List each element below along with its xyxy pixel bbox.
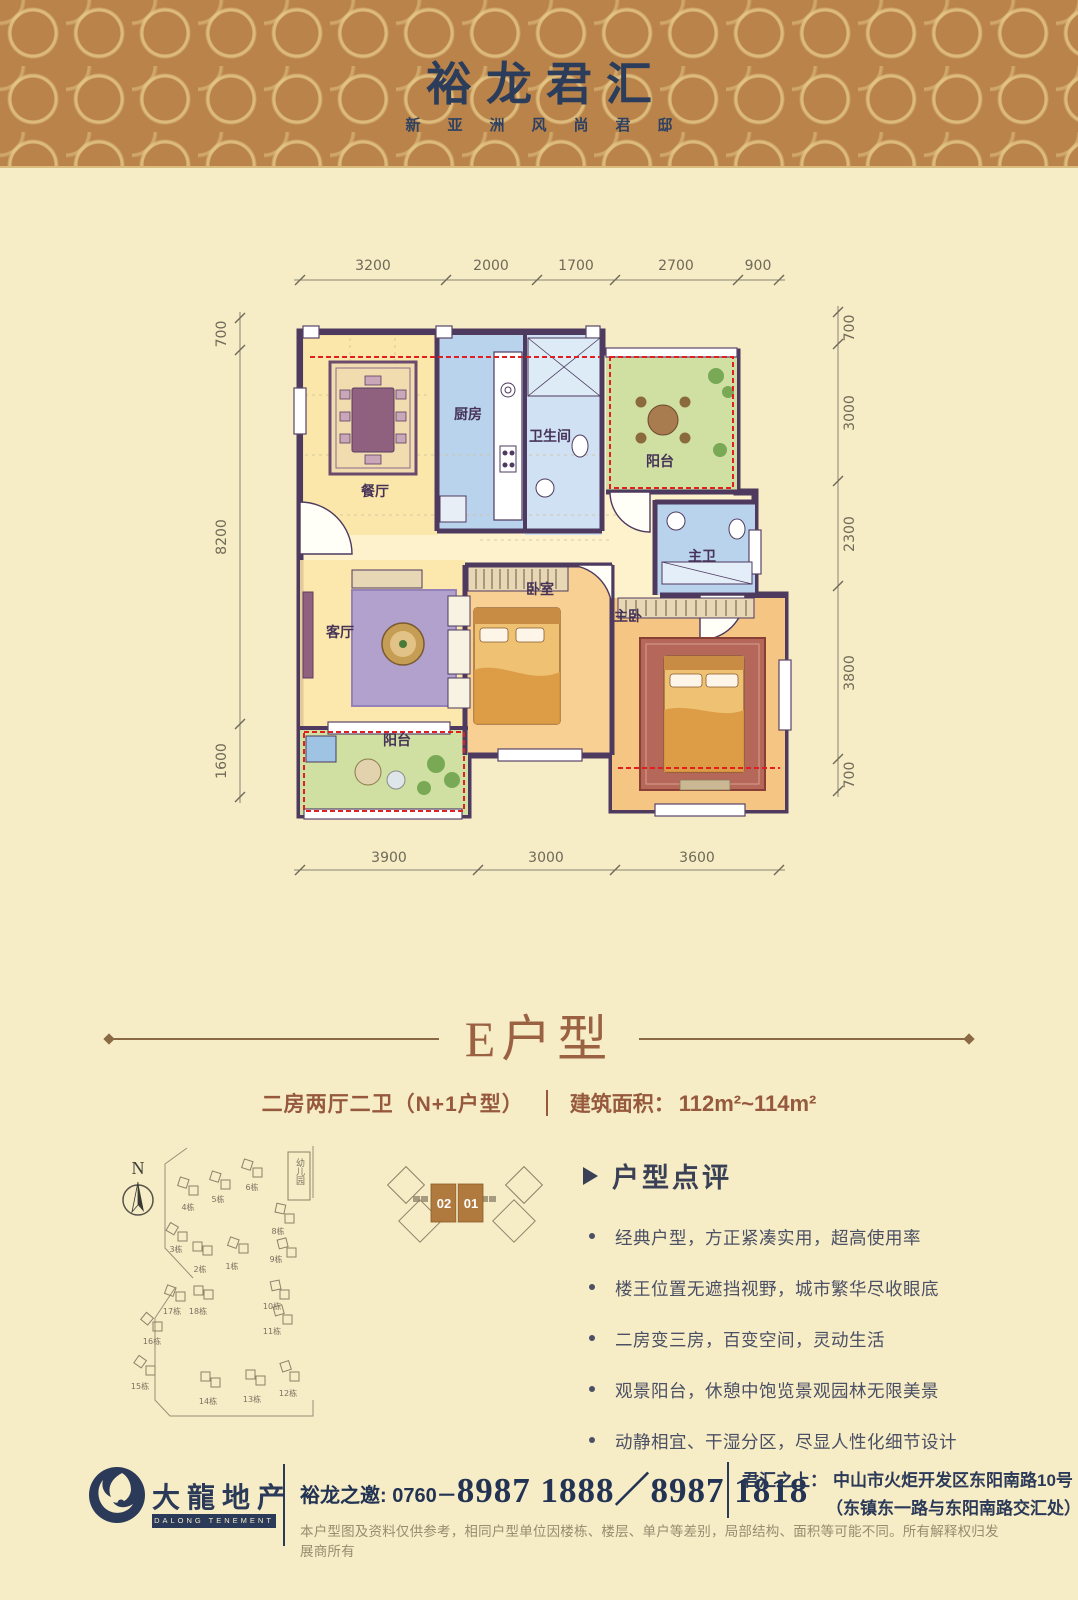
comment-text: 经典户型，方正紧凑实用，超高使用率	[615, 1225, 921, 1250]
building-label: 16栋	[143, 1336, 161, 1346]
disclaimer-text: 本户型图及资料仅供参考，相同户型单位因楼栋、楼层、单户等差别，局部结构、面积等可…	[300, 1520, 1012, 1560]
room-label-balcony-bottom: 阳台	[383, 732, 411, 748]
building-label: 1栋	[225, 1261, 238, 1271]
unit-block-02-label: 02	[437, 1196, 451, 1211]
room-label-bath: 卫生间	[529, 428, 571, 444]
key-plan: 02 01	[388, 1167, 543, 1243]
footer-divider	[283, 1464, 285, 1546]
building-label: 4栋	[181, 1202, 194, 1212]
comment-text: 二房变三房，百变空间，灵动生活	[615, 1327, 885, 1352]
unit-type-header: E户型	[0, 1014, 1078, 1064]
building-label: 6栋	[245, 1182, 258, 1192]
poster-page: 裕龙君汇 新亚洲风尚君邸	[0, 0, 1078, 1600]
dim-left-3: 1600	[214, 743, 230, 779]
building-label: 14栋	[199, 1396, 217, 1406]
building-label: 17栋	[163, 1306, 181, 1316]
room-label-bedroom: 卧室	[526, 581, 554, 597]
dimension-right: 700 3000 2300 3800 700	[833, 306, 858, 797]
bullet-icon	[589, 1386, 595, 1392]
list-item: 二房变三房，百变空间，灵动生活	[589, 1327, 1013, 1352]
dim-bottom-3: 3600	[679, 850, 715, 866]
dim-top-4: 2700	[658, 258, 694, 274]
bullet-icon	[589, 1233, 595, 1239]
list-item: 经典户型，方正紧凑实用，超高使用率	[589, 1225, 1013, 1250]
dim-right-2: 3000	[842, 395, 858, 431]
unit-area-value: 112m²~114m²	[679, 1091, 817, 1116]
room-label-balcony-top: 阳台	[646, 453, 674, 469]
unit-layout: 二房两厅二卫（N+1户型）	[262, 1088, 524, 1118]
room-label-dining: 餐厅	[360, 483, 389, 499]
list-item: 楼王位置无遮挡视野，城市繁华尽收眼底	[589, 1276, 1013, 1301]
floor-plan: 餐厅 厨房 卫生间 阳台 主卫 客厅 卧室 主卧 阳台 3200 2000 17…	[0, 240, 1078, 940]
dim-right-4: 3800	[842, 655, 858, 691]
dim-top-1: 3200	[355, 258, 391, 274]
comment-text: 楼王位置无遮挡视野，城市繁华尽收眼底	[615, 1276, 939, 1301]
comment-text: 观景阳台，休憩中饱览景观园林无限美景	[615, 1378, 939, 1403]
brand-tagline: 新亚洲风尚君邸	[0, 114, 1078, 135]
dim-right-1: 700	[842, 315, 858, 342]
building-label: 9栋	[269, 1254, 282, 1264]
phone-block: 裕龙之邀: 0760－ 8987 1888／8987 1818	[300, 1462, 808, 1513]
address-block: 君汇之上： 中山市火炬开发区东阳南路10号 （东镇东一路与东阳南路交汇处）	[742, 1466, 1078, 1519]
dim-bottom-1: 3900	[371, 850, 407, 866]
site-boundary	[155, 1146, 313, 1416]
room-label-kitchen: 厨房	[454, 406, 482, 422]
dim-bottom-2: 3000	[528, 850, 564, 866]
developer-name: 大龍地产	[152, 1476, 292, 1516]
dimension-left: 700 8200 1600	[214, 312, 245, 803]
building-label: 13栋	[243, 1394, 261, 1404]
diamond-icon	[964, 1033, 975, 1044]
compass-icon: N	[123, 1158, 153, 1215]
unit-area: 建筑面积：112m²~114m²	[570, 1088, 817, 1118]
building-label: 8栋	[271, 1226, 284, 1236]
dining-furniture	[330, 362, 416, 474]
comment-text: 动静相宜、干湿分区，尽显人性化细节设计	[615, 1429, 957, 1454]
footer-divider	[727, 1462, 729, 1518]
building-label: 10栋	[263, 1301, 281, 1311]
subtitle-divider	[546, 1090, 548, 1116]
dimension-bottom: 3900 3000 3600	[294, 850, 785, 875]
list-item: 动静相宜、干湿分区，尽显人性化细节设计	[589, 1429, 1013, 1454]
kindergarten: 幼儿园	[288, 1152, 310, 1200]
title-rule-left	[109, 1038, 439, 1040]
building-label: 15栋	[131, 1381, 149, 1391]
unit-subtitle: 二房两厅二卫（N+1户型） 建筑面积：112m²~114m²	[0, 1088, 1078, 1118]
dim-top-5: 900	[745, 258, 772, 274]
site-plan: N	[75, 1128, 575, 1428]
compass-north-label: N	[132, 1158, 145, 1178]
section-marker-icon	[583, 1167, 598, 1185]
address-line2: （东镇东一路与东阳南路交汇处）	[826, 1494, 1078, 1519]
bullet-icon	[589, 1437, 595, 1443]
building-label: 11栋	[263, 1326, 281, 1336]
building-label: 2栋	[193, 1264, 206, 1274]
room-label-living: 客厅	[325, 624, 354, 640]
list-item: 观景阳台，休憩中饱览景观园林无限美景	[589, 1378, 1013, 1403]
bullet-icon	[589, 1335, 595, 1341]
brand-title: 裕龙君汇	[0, 48, 1078, 114]
dim-top-3: 1700	[558, 258, 594, 274]
comments-header: 户型点评	[583, 1156, 1013, 1195]
comments-section: 户型点评 经典户型，方正紧凑实用，超高使用率 楼王位置无遮挡视野，城市繁华尽收眼…	[583, 1156, 1013, 1480]
dimension-top: 3200 2000 1700 2700 900	[294, 258, 785, 285]
header-banner: 裕龙君汇 新亚洲风尚君邸	[0, 0, 1078, 168]
dim-right-3: 2300	[842, 516, 858, 552]
comments-title: 户型点评	[612, 1156, 732, 1195]
developer-logo-icon	[88, 1466, 146, 1524]
unit-type-title: E户型	[465, 1014, 614, 1064]
comments-list: 经典户型，方正紧凑实用，超高使用率 楼王位置无遮挡视野，城市繁华尽收眼底 二房变…	[589, 1225, 1013, 1454]
bullet-icon	[589, 1284, 595, 1290]
building-label: 18栋	[189, 1306, 207, 1316]
dim-right-5: 700	[842, 762, 858, 789]
unit-block-01-label: 01	[464, 1196, 478, 1211]
phone-label: 裕龙之邀: 0760－	[300, 1479, 457, 1508]
address-label: 君汇之上：	[742, 1466, 827, 1491]
dim-left-1: 700	[214, 321, 230, 348]
room-label-master-bath: 主卫	[688, 548, 716, 564]
address-line1: 中山市火炬开发区东阳南路10号	[833, 1466, 1073, 1491]
building-label: 12栋	[279, 1388, 297, 1398]
site-buildings	[134, 1159, 299, 1387]
building-label: 3栋	[169, 1244, 182, 1254]
developer-name-en: DALONG TENEMENT	[152, 1514, 276, 1528]
dim-top-2: 2000	[473, 258, 509, 274]
building-label: 5栋	[211, 1194, 224, 1204]
unit-area-label: 建筑面积：	[570, 1093, 675, 1116]
dim-left-2: 8200	[214, 519, 230, 555]
kindergarten-label: 幼儿园	[294, 1157, 305, 1186]
room-label-master-bedroom: 主卧	[614, 608, 642, 624]
title-rule-right	[639, 1038, 969, 1040]
diamond-icon	[103, 1033, 114, 1044]
